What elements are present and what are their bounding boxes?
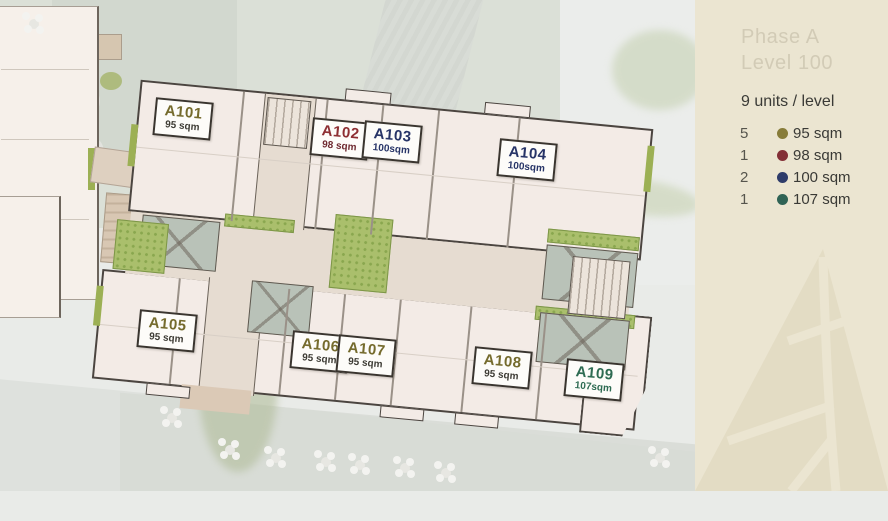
site-plan: A101 95 sqm A102 98 sqm A103 100sqm A104…	[0, 0, 695, 491]
legend-color-dot	[777, 128, 788, 139]
legend-count: 2	[740, 169, 760, 186]
unit-label-a103[interactable]: A103 100sqm	[361, 120, 422, 164]
building-phase-a	[0, 0, 718, 521]
brand-watermark-icon	[695, 243, 888, 491]
legend-count: 1	[740, 191, 760, 208]
planter-box	[112, 219, 169, 274]
unit-label-a101[interactable]: A101 95 sqm	[152, 97, 213, 141]
unit-area: 100sqm	[372, 143, 411, 157]
planter-box	[329, 214, 394, 293]
unit-area: 95 sqm	[346, 357, 385, 371]
stair-core	[567, 256, 630, 319]
units-per-level: 9 units / level	[741, 93, 834, 111]
unit-area: 100sqm	[507, 161, 546, 175]
legend-row-107sqm: 1 107 sqm	[740, 188, 851, 210]
phase-title: Phase A	[741, 24, 833, 50]
phase-level-title: Phase A Level 100	[741, 24, 833, 77]
legend-label: 95 sqm	[793, 125, 842, 142]
legend-count: 1	[740, 147, 760, 164]
courtyard-patio	[247, 280, 314, 338]
unit-area: 95 sqm	[300, 353, 339, 367]
unit-type-legend: 5 95 sqm 1 98 sqm 2 100 sqm 1 107 sqm	[740, 122, 851, 210]
floorplan-viewer: { "sidebar": { "title_line1": "Phase A",…	[0, 0, 888, 491]
unit-label-a108[interactable]: A108 95 sqm	[471, 346, 532, 390]
unit-area: 95 sqm	[163, 120, 202, 134]
unit-area: 98 sqm	[320, 140, 359, 154]
unit-label-a109[interactable]: A109 107sqm	[563, 358, 624, 402]
legend-row-100sqm: 2 100 sqm	[740, 166, 851, 188]
legend-label: 107 sqm	[793, 191, 851, 208]
stair-core	[263, 97, 311, 149]
level-title: Level 100	[741, 50, 833, 76]
legend-count: 5	[740, 125, 760, 142]
legend-row-98sqm: 1 98 sqm	[740, 144, 851, 166]
legend-row-95sqm: 5 95 sqm	[740, 122, 851, 144]
legend-label: 100 sqm	[793, 169, 851, 186]
unit-area: 95 sqm	[147, 332, 186, 346]
unit-label-a104[interactable]: A104 100sqm	[496, 138, 557, 182]
legend-color-dot	[777, 150, 788, 161]
unit-label-a105[interactable]: A105 95 sqm	[136, 309, 197, 353]
unit-label-a107[interactable]: A107 95 sqm	[335, 334, 396, 378]
info-sidebar: Phase A Level 100 9 units / level 5 95 s…	[695, 0, 888, 491]
legend-color-dot	[777, 194, 788, 205]
legend-label: 98 sqm	[793, 147, 842, 164]
unit-area: 107sqm	[574, 381, 613, 395]
unit-area: 95 sqm	[482, 369, 521, 383]
legend-color-dot	[777, 172, 788, 183]
